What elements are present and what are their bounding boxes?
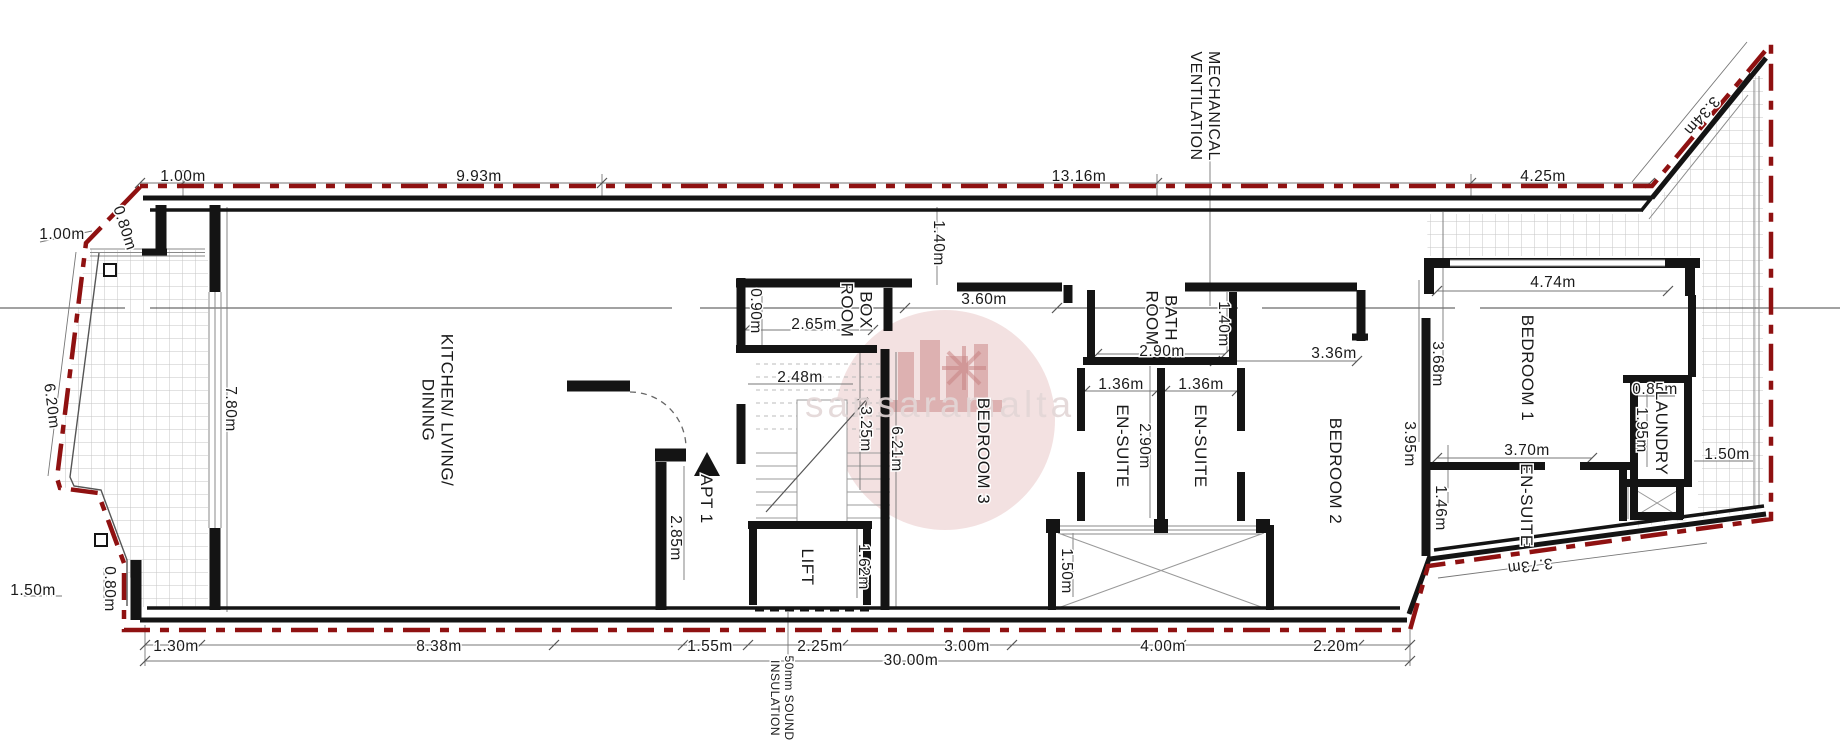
dim-shaft-height: 1.50m xyxy=(1058,548,1075,594)
dim-top-left-offset: 1.00m xyxy=(160,168,206,185)
entry-door-arc xyxy=(630,392,686,448)
dim-hall-height: 6.21m xyxy=(888,426,905,472)
room-kitchen: KITCHEN/ LIVING/DINING xyxy=(419,334,457,487)
dim-stair-width: 2.48m xyxy=(777,369,823,386)
dim-ensuite-depth: 2.90m xyxy=(1136,423,1153,469)
dim-diag-bottom-right: 3.73m xyxy=(1506,554,1553,576)
dim-bed2-width: 3.36m xyxy=(1311,345,1357,362)
dim-corridor-width: 1.40m xyxy=(930,220,947,266)
dim-bottom-lift: 2.25m xyxy=(797,638,843,655)
room-bed3: BEDROOM 3 xyxy=(974,398,993,505)
note-sound-insulation: 50mm SOUNDINSULATION xyxy=(768,655,796,740)
dim-box-width: 2.65m xyxy=(791,316,837,333)
dim-bottom-total: 30.00m xyxy=(884,652,939,669)
dim-ensuite3-left: 1.46m xyxy=(1432,485,1449,531)
dim-bed2-left: 3.95m xyxy=(1401,421,1418,467)
watermark-text: sansaramalta xyxy=(805,384,1075,425)
note-mechanical-ventilation: MECHANICALVENTILATION xyxy=(1187,51,1222,161)
dim-bed1-width: 4.74m xyxy=(1530,274,1576,291)
dim-terrace-right: 1.50m xyxy=(1704,446,1750,463)
terrace-right xyxy=(1420,66,1763,554)
dim-bottom-kitchen: 8.38m xyxy=(416,638,462,655)
dim-laundry-height: 1.95m xyxy=(1633,407,1650,453)
room-bed2: BEDROOM 2 xyxy=(1326,418,1345,525)
label-apt1: APT 1 xyxy=(697,474,716,523)
room-bed1: BEDROOM 1 xyxy=(1518,315,1537,422)
dim-bottom-bed2: 2.20m xyxy=(1313,638,1359,655)
dim-bed1-bottom: 3.70m xyxy=(1504,442,1550,459)
apt-entry-arrow xyxy=(694,452,720,476)
room-ensuite1: EN-SUITE xyxy=(1113,404,1132,487)
dim-left-kitchen: 7.80m xyxy=(222,386,239,432)
dim-top-kitchen: 9.93m xyxy=(456,168,502,185)
room-ensuite3: EN-SUITE xyxy=(1517,463,1536,546)
dim-bottom-shaft: 4.00m xyxy=(1140,638,1186,655)
floor-plan-page: sansaramalta 1.00m9.93m13.16m4.25m3.34m1… xyxy=(0,0,1840,747)
dim-lift-height: 1.62m xyxy=(855,544,872,590)
dim-ensuite2-width: 1.36m xyxy=(1178,376,1224,393)
dim-bed3-width: 3.60m xyxy=(961,291,1007,308)
dim-left-step: 0.80m xyxy=(109,204,139,253)
room-laundry: LAUNDRY xyxy=(1652,391,1671,475)
dim-left-slant: 6.20m xyxy=(40,382,62,429)
dim-bottom-terrace: 1.30m xyxy=(153,638,199,655)
dim-left-corner: 1.00m xyxy=(39,226,85,243)
dim-entry-height: 2.85m xyxy=(667,515,684,561)
dim-bath-depth: 1.40m xyxy=(1215,301,1232,347)
floor-plan-svg: sansaramalta 1.00m9.93m13.16m4.25m3.34m1… xyxy=(0,0,1840,747)
dim-box-height: 0.90m xyxy=(747,288,764,334)
dim-top-corridor: 13.16m xyxy=(1052,168,1107,185)
room-bath: BATHROOM xyxy=(1143,291,1181,346)
dim-top-right: 4.25m xyxy=(1520,168,1566,185)
dim-bed1-left: 3.68m xyxy=(1429,341,1446,387)
room-ensuite2: EN-SUITE xyxy=(1191,404,1210,487)
room-lift: LIFT xyxy=(798,549,817,586)
dim-bottom-bed3: 3.00m xyxy=(944,638,990,655)
dim-bath-width: 2.90m xyxy=(1139,343,1185,360)
dim-ensuite1-width: 1.36m xyxy=(1098,376,1144,393)
dim-stair-height: 3.25m xyxy=(857,406,874,452)
dim-bottom-hall: 1.55m xyxy=(687,638,733,655)
dim-bottom-left-step: 0.80m xyxy=(101,566,118,612)
dim-bottom-left-corner: 1.50m xyxy=(10,582,56,599)
room-box: BOXROOM xyxy=(838,283,876,338)
